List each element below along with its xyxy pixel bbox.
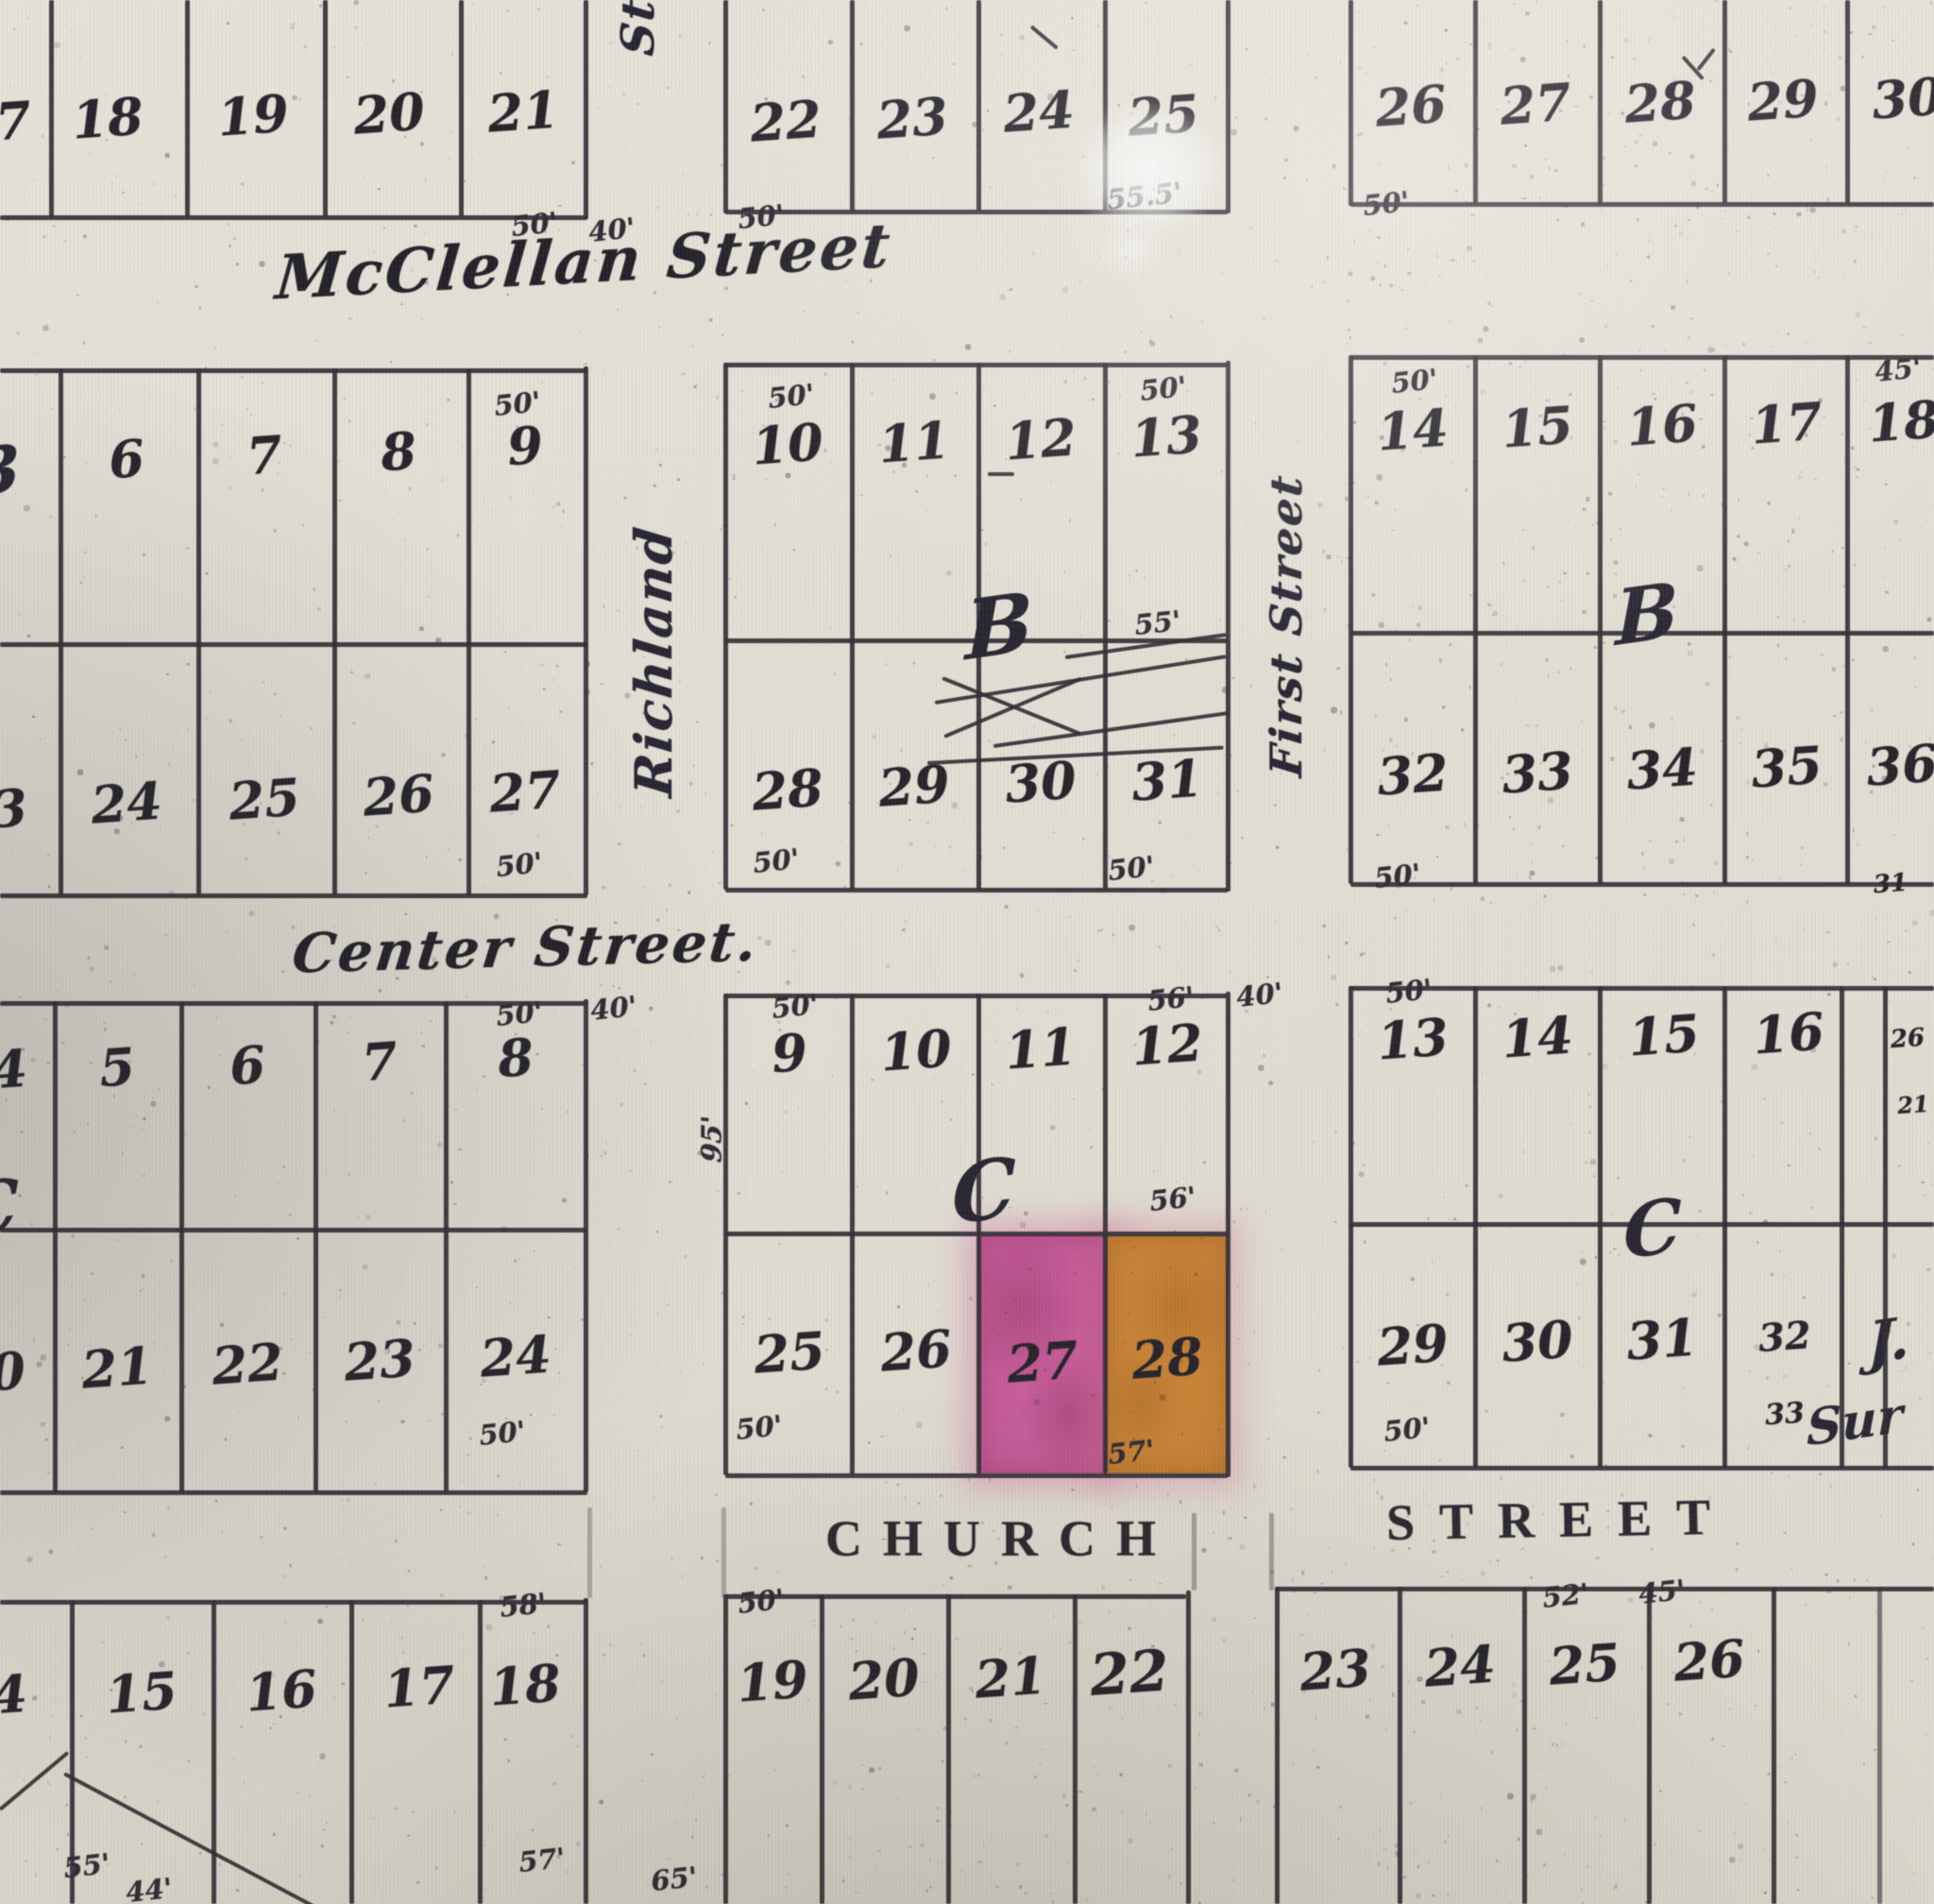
lot-number: 26 (879, 1322, 954, 1378)
plat-line (478, 1600, 483, 1904)
plat-line (850, 0, 855, 212)
plat-line (1598, 986, 1603, 1468)
measurement-label: 50' (1107, 853, 1156, 885)
measurement-label: 50' (752, 845, 801, 877)
measurement-label: 57' (517, 1844, 567, 1877)
top-edge-street-label-partial: St (612, 0, 665, 58)
plat-line (0, 368, 587, 373)
plat-line (584, 0, 588, 219)
lot-number: 16 (245, 1662, 319, 1718)
lot-number: 31 (1130, 752, 1205, 807)
lot-number: 26 (1374, 77, 1449, 133)
measurement-label: 45' (1874, 354, 1923, 386)
measurement-label: 50' (495, 849, 544, 881)
plat-line (723, 0, 728, 213)
lot-number: 10 (879, 1022, 954, 1078)
lot-number: 29 (877, 757, 952, 813)
lot-number: 30 (1871, 70, 1934, 126)
lot-number: 28 (1130, 1330, 1205, 1385)
plat-line (1398, 1587, 1402, 1904)
lot-number: 7 (360, 1035, 399, 1088)
plat-line (0, 1490, 587, 1495)
plat-line (53, 1001, 58, 1492)
lot-number: 5 (97, 1041, 136, 1094)
plat-line (179, 1001, 184, 1492)
plat-line (1275, 1587, 1280, 1904)
plat-line (1845, 355, 1850, 884)
lot-number: 6 (107, 433, 145, 485)
plat-line (185, 0, 190, 217)
measurement-label: 56' (1146, 983, 1196, 1015)
measurement-label: 50' (771, 991, 820, 1023)
plat-line (1275, 1587, 1934, 1591)
measurement-label: 50' (510, 209, 559, 241)
plat-line (196, 368, 201, 895)
block-letter: C (952, 1147, 1016, 1237)
lot-number: 28 (751, 761, 825, 817)
plat-line (1030, 25, 1059, 49)
lot-number: 24 (1423, 1638, 1498, 1693)
lot-number: 16 (1752, 1005, 1826, 1061)
lot-number: 27 (1499, 76, 1573, 131)
lot-number: 21 (974, 1649, 1048, 1705)
plat-line (721, 1507, 726, 1598)
lot-number: 0 (0, 1345, 27, 1398)
surveyor-note-line1: J. (1868, 1310, 1909, 1373)
lot-number: 18 (488, 1657, 563, 1712)
church-street-label-word1: CHURCH (825, 1509, 1177, 1568)
lot-number: 15 (105, 1664, 179, 1720)
plat-line (1350, 986, 1934, 991)
plat-line (946, 1594, 951, 1904)
lot-number: 23 (343, 1332, 417, 1387)
measurement-label: 56' (1148, 1183, 1197, 1215)
plat-line (1473, 0, 1478, 204)
measurement-label: 50' (1383, 1414, 1432, 1446)
plat-line (1522, 1587, 1527, 1904)
lot-number: 21 (486, 83, 561, 139)
measurement-label: 50' (737, 1586, 786, 1618)
surveyor-note-line2: Sur (1807, 1391, 1903, 1454)
plat-line (1840, 986, 1844, 1468)
lot-number: 17 (382, 1658, 457, 1714)
lot-number: 18 (1867, 393, 1934, 449)
plat-line (584, 1598, 588, 1904)
measurement-label: 50' (1139, 373, 1188, 405)
lot-number: 13 (1376, 1011, 1450, 1066)
lot-number: 3 (0, 782, 29, 835)
plat-line (1722, 0, 1727, 204)
measurement-label: 50' (1384, 976, 1434, 1008)
measurement-label: 40' (1235, 979, 1284, 1011)
lot-number: 30 (1004, 754, 1078, 809)
lot-number: 18 (71, 90, 145, 145)
measurement-label: 50' (735, 1412, 784, 1444)
lot-number: 15 (1501, 399, 1575, 454)
plat-line (1192, 1513, 1196, 1590)
plat-line (1349, 355, 1353, 884)
lot-number: 24 (479, 1328, 553, 1384)
plat-line (212, 1600, 216, 1904)
lot-number: 12 (1004, 411, 1078, 467)
lot-number: 11 (877, 414, 952, 469)
lot-number: 17 (1750, 395, 1824, 450)
plat-line (467, 368, 471, 895)
plat-line (49, 0, 54, 217)
lot-number: 21 (1897, 1093, 1930, 1117)
plat-line (1350, 1466, 1934, 1470)
plat-line (323, 0, 328, 217)
lot-number: 13 (1129, 408, 1204, 464)
lot-number: 20 (352, 85, 427, 141)
plat-line (584, 999, 588, 1492)
first-street-label: First Street (1261, 471, 1312, 779)
lot-number: 26 (1672, 1632, 1747, 1688)
lot-number: 19 (216, 87, 291, 143)
lot-number: 9 (770, 1027, 808, 1079)
plat-line (1226, 992, 1230, 1477)
lot-number: 4 (0, 1043, 29, 1096)
plat-line (1877, 1587, 1882, 1904)
plat-line (1269, 1513, 1274, 1590)
plat-line (314, 1001, 318, 1492)
lot-number: 8 (496, 1031, 534, 1084)
measurement-label: 50' (737, 201, 786, 233)
plat-line (1473, 986, 1478, 1468)
lot-number: 16 (1625, 397, 1700, 452)
plat-line (1883, 986, 1888, 1468)
center-street-label: Center Street. (289, 909, 762, 985)
block-letter: C (0, 1168, 19, 1249)
lot-number: 21 (80, 1339, 155, 1395)
lot-number: 22 (1088, 1642, 1170, 1705)
plat-line (725, 1594, 1186, 1599)
church-street-label-word2: STREET (1385, 1487, 1735, 1552)
lot-number: 29 (1376, 1317, 1450, 1372)
plat-line (1186, 1590, 1191, 1904)
plat-line (1073, 1594, 1077, 1904)
lot-number: 12 (1130, 1016, 1205, 1072)
plat-line (332, 368, 337, 895)
plat-line (1647, 1587, 1652, 1904)
ink-layer: McClellan Street Center Street. CHURCH S… (0, 0, 1934, 1904)
plat-line (1598, 0, 1603, 204)
lot-number: 19 (736, 1653, 810, 1708)
plat-line (988, 472, 1014, 476)
richland-street-label: Richland (623, 523, 684, 800)
lot-number: 20 (847, 1651, 922, 1707)
plat-line (723, 994, 728, 1475)
measurement-label: 50' (495, 998, 544, 1030)
plat-line (1226, 361, 1230, 892)
lot-number: 24 (90, 774, 164, 830)
plat-line (584, 366, 588, 895)
lot-number: 34 (1625, 740, 1700, 796)
plat-line (1845, 0, 1850, 204)
plat-line (59, 368, 63, 895)
plat-line (1772, 1587, 1776, 1904)
lot-number: 4 (0, 1668, 29, 1721)
lot-number: 36 (1865, 737, 1934, 792)
lot-number: 32 (1757, 1317, 1812, 1358)
plat-line (587, 1507, 592, 1598)
plat-line (976, 0, 981, 212)
lot-number: 31 (1625, 1311, 1700, 1367)
measurement-label: 55' (62, 1850, 111, 1882)
lot-number: 11 (1004, 1020, 1078, 1076)
measurement-label: 50' (478, 1418, 527, 1450)
lot-number: 22 (749, 93, 823, 148)
measurement-label: 95' (699, 1114, 726, 1164)
lot-number: 35 (1750, 739, 1824, 794)
measurement-label: 50' (767, 381, 816, 413)
plat-line (723, 363, 728, 890)
lot-number: 33 (1501, 744, 1575, 800)
lot-number: 28 (1623, 74, 1698, 129)
plat-line (850, 363, 855, 890)
plat-line (820, 1594, 824, 1904)
plat-line (1722, 355, 1727, 884)
plat-line (0, 1228, 587, 1232)
plat-line (1349, 986, 1353, 1468)
measurement-label: 50' (1373, 860, 1422, 892)
measurement-label: 65' (650, 1863, 699, 1895)
plat-line (63, 1772, 318, 1904)
lot-number: 23 (1298, 1641, 1373, 1697)
lot-number: 25 (228, 771, 302, 826)
lot-number: 27 (1006, 1334, 1080, 1389)
block-letter: B (1616, 571, 1679, 656)
measurement-label: 50' (493, 388, 542, 420)
block-letter: B (965, 582, 1033, 673)
plat-line (725, 1473, 1228, 1478)
plat-line (349, 1600, 354, 1904)
plat-line (459, 0, 464, 217)
plat-line (850, 994, 855, 1475)
measurement-label: 58' (499, 1589, 548, 1622)
lot-number: 26 (1890, 1026, 1926, 1052)
lot-number: 25 (753, 1324, 827, 1380)
lot-number: 27 (488, 763, 563, 819)
camera-glare-secondary (1082, 215, 1180, 285)
plat-line (1103, 363, 1108, 890)
plat-line (993, 711, 1230, 748)
mcclellan-street-label: McClellan Street (273, 211, 895, 314)
block-letter: B (0, 435, 20, 510)
plat-line (0, 215, 587, 220)
plat-line (0, 642, 587, 647)
lot-number: 10 (751, 416, 825, 471)
plat-line (0, 893, 587, 898)
measurement-label: 50' (1362, 188, 1411, 220)
lot-number: 25 (1548, 1636, 1622, 1691)
measurement-label: 50' (1390, 365, 1439, 398)
plat-line (0, 1751, 69, 1810)
measurement-label: 40' (587, 214, 636, 246)
lot-number: 6 (228, 1039, 266, 1092)
lot-number: 7 (0, 94, 33, 147)
measurement-label: 57' (1107, 1436, 1156, 1469)
plat-line (1349, 0, 1353, 206)
lot-number: 22 (211, 1335, 285, 1391)
measurement-label: 55' (1133, 607, 1182, 639)
plat-line (444, 1001, 449, 1492)
lot-number: 14 (1376, 401, 1450, 457)
lot-number: 31 (1873, 871, 1909, 897)
lot-number: 30 (1501, 1313, 1575, 1368)
lot-number: 7 (245, 429, 283, 482)
measurement-label: 44' (125, 1875, 174, 1904)
lot-number: 29 (1746, 72, 1821, 127)
measurement-label: 52' (1541, 1580, 1590, 1612)
lot-number: 33 (1764, 1400, 1806, 1431)
plat-map: McClellan Street Center Street. CHURCH S… (0, 0, 1934, 1904)
lot-number: 32 (1376, 746, 1450, 802)
lot-number: 15 (1627, 1007, 1702, 1062)
lot-number: 8 (379, 425, 417, 478)
plat-line (1696, 48, 1715, 72)
measurement-label: 40' (589, 993, 638, 1025)
plat-line (723, 1594, 728, 1904)
plat-line (1598, 355, 1603, 884)
lot-number: 23 (875, 90, 950, 145)
block-letter: C (1623, 1188, 1681, 1270)
plat-line (1722, 986, 1727, 1468)
plat-line (1473, 355, 1478, 884)
plat-line (1103, 994, 1108, 1473)
lot-number: 14 (1501, 1009, 1575, 1064)
lot-number: 26 (362, 767, 436, 823)
measurement-label: 45' (1637, 1576, 1687, 1608)
lot-number: 9 (505, 419, 544, 472)
